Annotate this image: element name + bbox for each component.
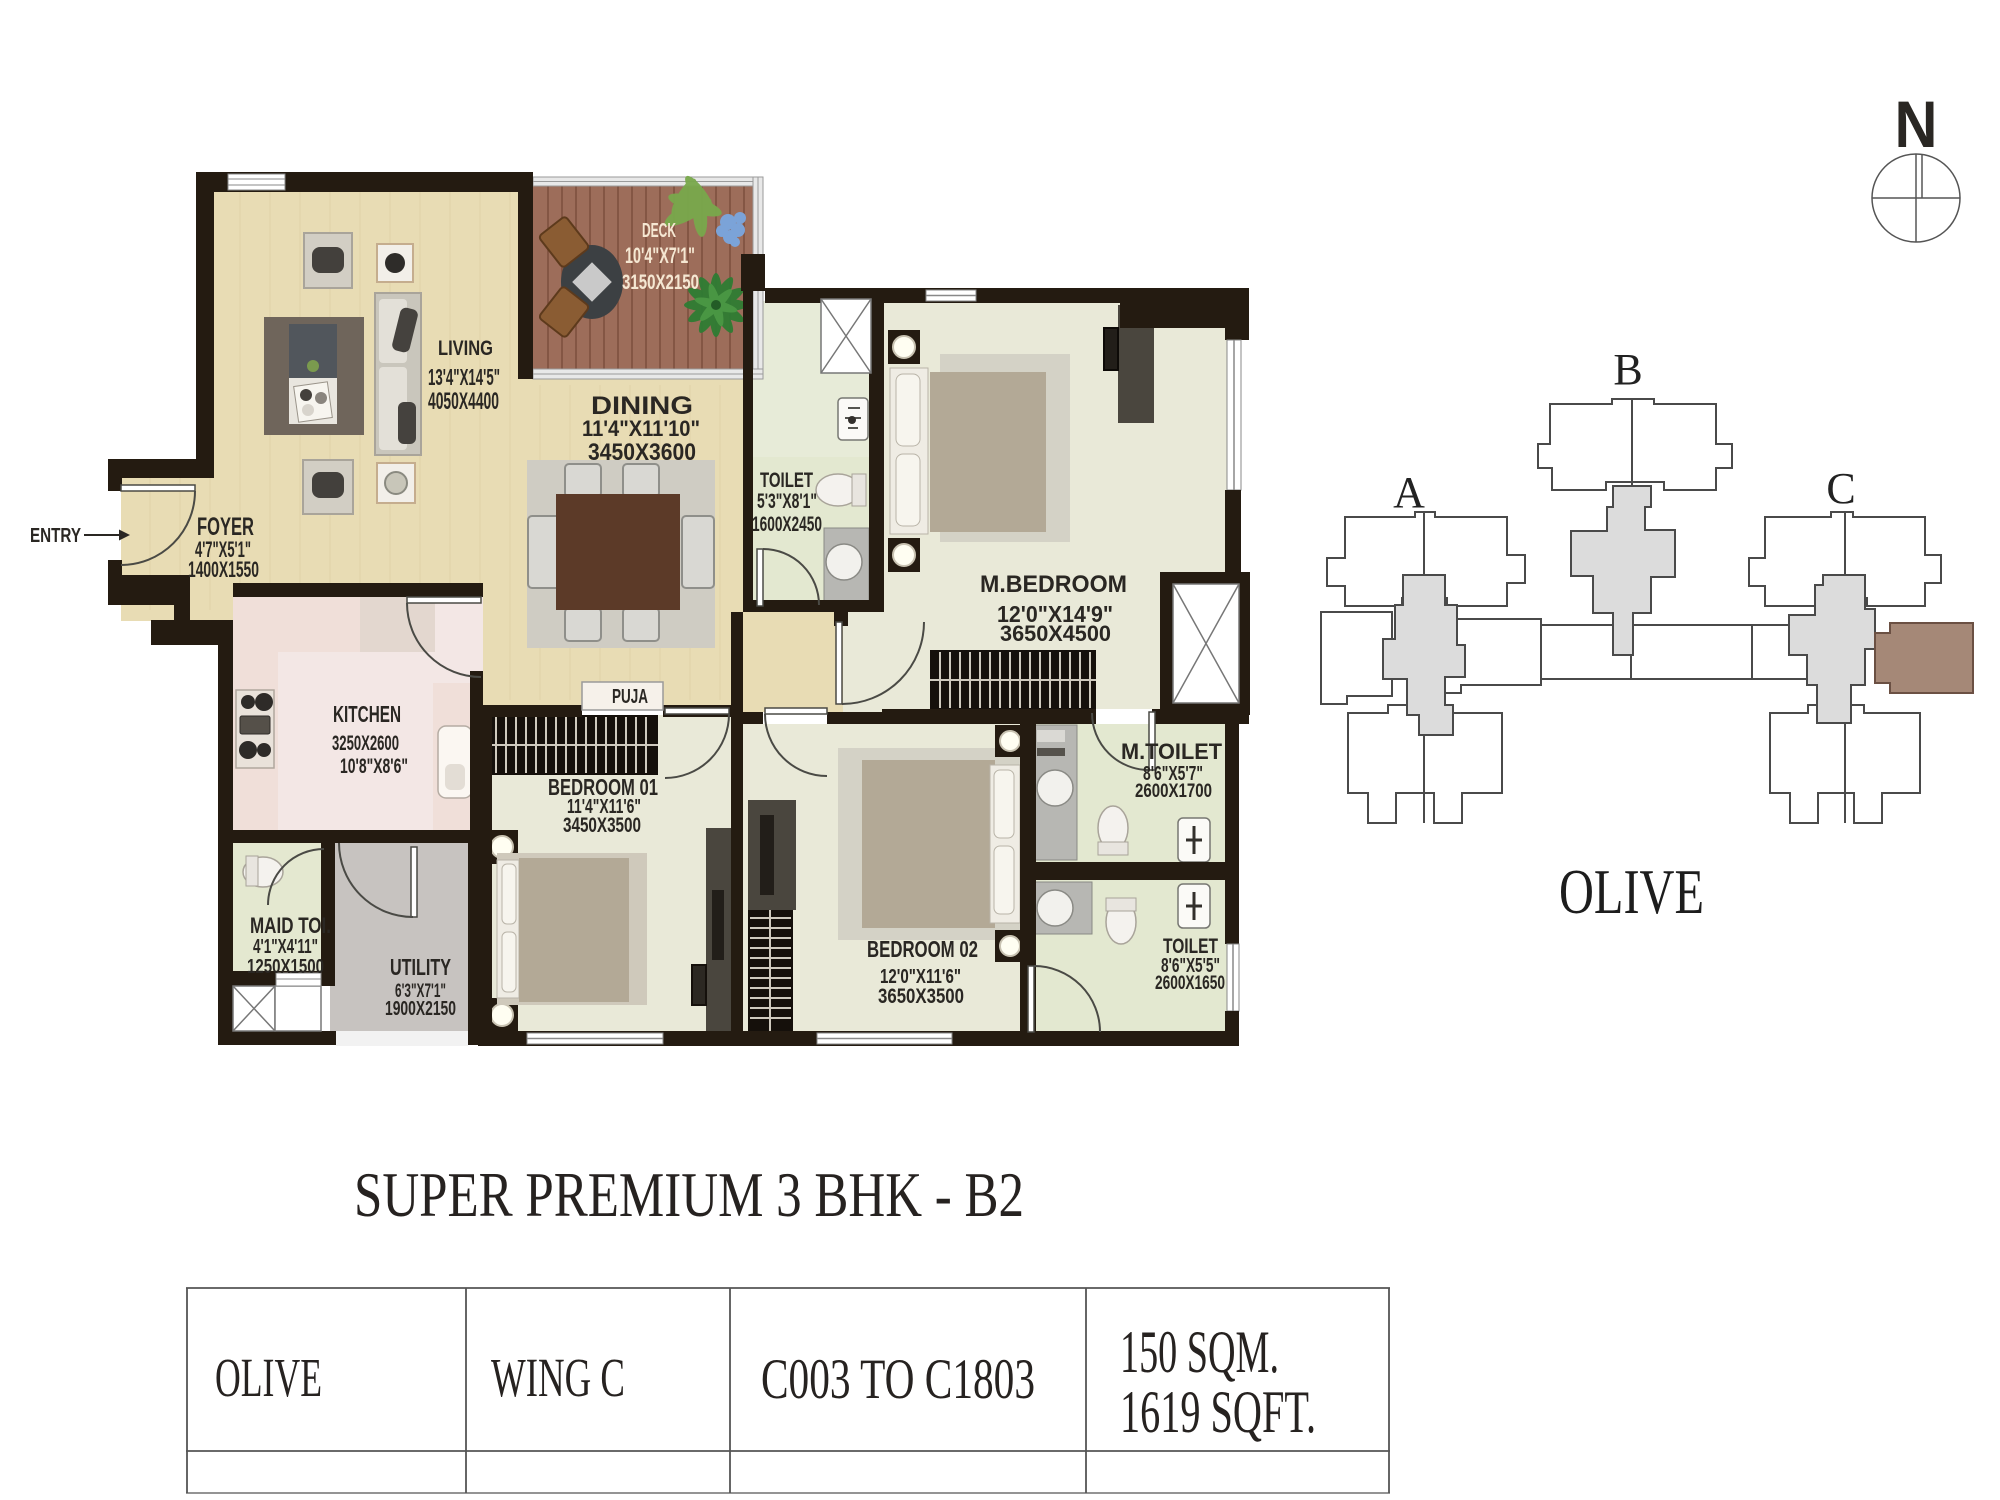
svg-text:ENTRY: ENTRY bbox=[30, 525, 81, 547]
svg-text:KITCHEN: KITCHEN bbox=[333, 701, 401, 727]
svg-text:3650X3500: 3650X3500 bbox=[878, 985, 964, 1008]
svg-text:3450X3600: 3450X3600 bbox=[588, 439, 696, 466]
svg-text:C: C bbox=[1826, 464, 1855, 513]
svg-text:M.TOILET: M.TOILET bbox=[1121, 739, 1223, 764]
svg-text:1400X1550: 1400X1550 bbox=[188, 557, 259, 582]
svg-text:SUPER PREMIUM 3 BHK - B2: SUPER PREMIUM 3 BHK - B2 bbox=[354, 1159, 1024, 1230]
svg-text:TOILET: TOILET bbox=[760, 469, 813, 492]
svg-text:MAID TOI.: MAID TOI. bbox=[250, 913, 331, 938]
svg-text:3450X3500: 3450X3500 bbox=[563, 814, 641, 837]
svg-text:10'4"X7'1": 10'4"X7'1" bbox=[625, 243, 695, 268]
svg-text:1250X1500: 1250X1500 bbox=[247, 956, 324, 978]
svg-text:C003 TO C1803: C003 TO C1803 bbox=[761, 1348, 1035, 1411]
svg-text:13'4"X14'5": 13'4"X14'5" bbox=[428, 364, 500, 390]
svg-text:LIVING: LIVING bbox=[438, 337, 493, 360]
svg-text:11'4"X11'10": 11'4"X11'10" bbox=[582, 416, 700, 441]
svg-text:5'3"X8'1": 5'3"X8'1" bbox=[757, 490, 817, 513]
svg-text:UTILITY: UTILITY bbox=[390, 954, 451, 980]
svg-text:3650X4500: 3650X4500 bbox=[1000, 621, 1111, 646]
svg-text:PUJA: PUJA bbox=[612, 686, 648, 708]
svg-text:1600X2450: 1600X2450 bbox=[752, 513, 822, 536]
svg-text:DECK: DECK bbox=[642, 220, 676, 242]
svg-text:4'1"X4'11": 4'1"X4'11" bbox=[253, 936, 318, 958]
svg-text:OLIVE: OLIVE bbox=[215, 1347, 322, 1408]
svg-text:10'8"X8'6": 10'8"X8'6" bbox=[340, 755, 408, 778]
svg-text:3150X2150: 3150X2150 bbox=[622, 271, 699, 294]
svg-text:WING C: WING C bbox=[491, 1347, 625, 1408]
svg-text:1900X2150: 1900X2150 bbox=[385, 998, 456, 1020]
svg-text:BEDROOM 02: BEDROOM 02 bbox=[867, 936, 978, 962]
svg-text:OLIVE: OLIVE bbox=[1559, 856, 1704, 927]
svg-text:2600X1650: 2600X1650 bbox=[1155, 973, 1225, 994]
svg-text:B: B bbox=[1613, 345, 1642, 394]
svg-text:3250X2600: 3250X2600 bbox=[332, 732, 399, 755]
svg-text:1619 SQFT.: 1619 SQFT. bbox=[1120, 1379, 1316, 1445]
svg-text:2600X1700: 2600X1700 bbox=[1135, 781, 1212, 802]
svg-text:N: N bbox=[1895, 87, 1938, 161]
svg-text:4050X4400: 4050X4400 bbox=[428, 388, 499, 415]
svg-text:A: A bbox=[1393, 468, 1425, 517]
svg-text:M.BEDROOM: M.BEDROOM bbox=[980, 571, 1127, 598]
svg-text:150 SQM.: 150 SQM. bbox=[1120, 1319, 1279, 1385]
